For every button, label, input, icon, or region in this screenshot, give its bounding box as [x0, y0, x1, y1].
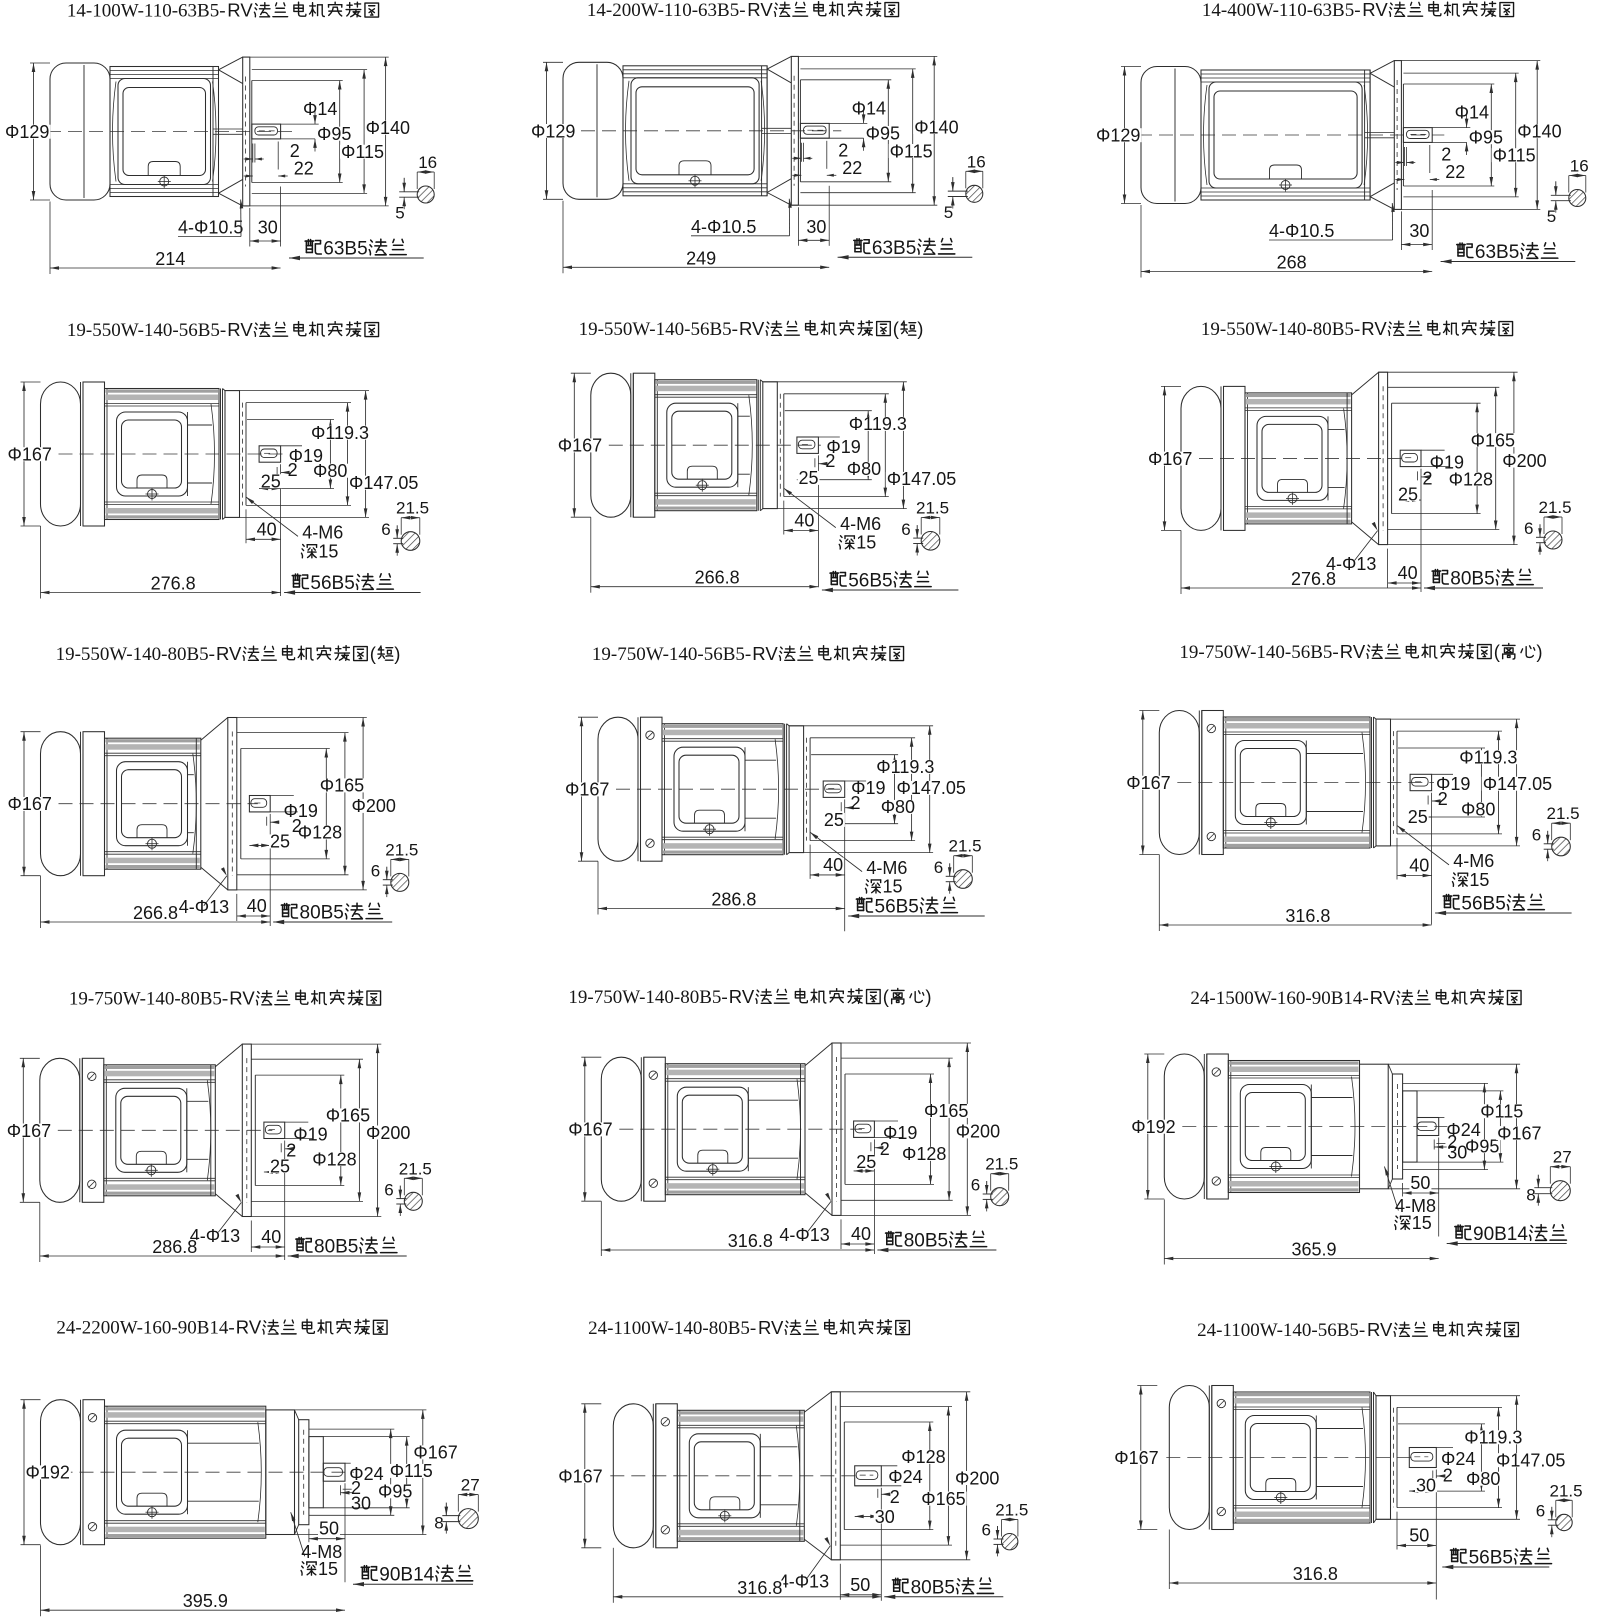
svg-text:40: 40 [257, 519, 277, 539]
svg-text:Φ200: Φ200 [352, 796, 396, 816]
svg-text:Φ128: Φ128 [902, 1144, 946, 1164]
svg-text:15: 15 [883, 877, 903, 897]
svg-text:Φ14: Φ14 [852, 98, 886, 118]
svg-text:RV: RV [1361, 318, 1387, 339]
svg-text:4-M6: 4-M6 [866, 858, 907, 878]
svg-text:Φ95: Φ95 [1465, 1136, 1499, 1156]
svg-text:40: 40 [1398, 563, 1418, 583]
svg-text:286.8: 286.8 [711, 890, 756, 910]
svg-text:RV: RV [758, 1317, 784, 1338]
svg-text:40: 40 [247, 896, 267, 916]
svg-text:56B5: 56B5 [1469, 1548, 1513, 1569]
svg-text:24-2200W-160-90B14-: 24-2200W-160-90B14- [56, 1318, 234, 1339]
svg-text:63B5: 63B5 [323, 239, 367, 260]
svg-text:RV: RV [1367, 1319, 1393, 1340]
svg-text:63B5: 63B5 [1475, 242, 1519, 263]
svg-text:Φ80: Φ80 [847, 459, 881, 479]
svg-text:6: 6 [934, 858, 943, 877]
svg-text:24-1100W-140-80B5-: 24-1100W-140-80B5- [588, 1318, 756, 1339]
svg-text:25: 25 [799, 468, 819, 488]
svg-text:19-750W-140-56B5-: 19-750W-140-56B5- [592, 644, 751, 665]
svg-text:2: 2 [851, 793, 861, 813]
svg-text:2: 2 [1443, 1466, 1453, 1486]
svg-text:25: 25 [1408, 807, 1428, 827]
svg-text:4-Φ13: 4-Φ13 [779, 1225, 829, 1245]
svg-text:4-Φ10.5: 4-Φ10.5 [1269, 221, 1334, 241]
svg-text:30: 30 [875, 1507, 895, 1527]
svg-text:56B5: 56B5 [875, 897, 919, 918]
svg-text:6: 6 [1524, 519, 1533, 538]
svg-text:Φ80: Φ80 [1461, 800, 1495, 820]
svg-text:21.5: 21.5 [995, 1501, 1028, 1520]
svg-text:Φ129: Φ129 [5, 122, 49, 142]
svg-text:30: 30 [258, 218, 278, 238]
svg-text:16: 16 [1570, 157, 1589, 176]
svg-text:RV: RV [739, 318, 765, 339]
svg-text:266.8: 266.8 [133, 903, 178, 923]
svg-text:4-Φ10.5: 4-Φ10.5 [178, 218, 243, 238]
svg-text:15: 15 [1412, 1213, 1432, 1233]
svg-text:RV: RV [752, 643, 778, 664]
svg-text:22: 22 [1445, 162, 1465, 182]
svg-text:90B14: 90B14 [379, 1565, 434, 1586]
svg-text:2: 2 [890, 1487, 900, 1507]
svg-text:Φ19: Φ19 [293, 1124, 327, 1144]
svg-text:56B5: 56B5 [310, 573, 354, 594]
svg-text:40: 40 [794, 511, 814, 531]
svg-text:21.5: 21.5 [1539, 498, 1572, 517]
svg-text:21.5: 21.5 [399, 1159, 432, 1178]
svg-text:15: 15 [1469, 870, 1489, 890]
svg-text:19-550W-140-80B5-: 19-550W-140-80B5- [1201, 319, 1360, 340]
svg-text:Φ192: Φ192 [26, 1463, 70, 1483]
svg-text:Φ24: Φ24 [888, 1467, 922, 1487]
svg-text:50: 50 [1409, 1526, 1429, 1546]
svg-text:6: 6 [1536, 1502, 1545, 1521]
svg-text:Φ128: Φ128 [312, 1149, 356, 1169]
svg-text:276.8: 276.8 [151, 574, 196, 594]
svg-text:2: 2 [288, 460, 298, 480]
svg-text:316.8: 316.8 [1293, 1564, 1338, 1584]
svg-text:Φ167: Φ167 [1126, 773, 1170, 793]
svg-text:14-200W-110-63B5-: 14-200W-110-63B5- [587, 0, 746, 21]
svg-text:50: 50 [319, 1519, 339, 1539]
svg-text:4-M6: 4-M6 [1453, 851, 1494, 871]
svg-text:Φ115: Φ115 [1480, 1102, 1523, 1122]
svg-text:5: 5 [395, 204, 404, 223]
svg-text:Φ14: Φ14 [303, 99, 337, 119]
svg-text:Φ80: Φ80 [313, 461, 347, 481]
svg-text:25: 25 [270, 832, 290, 852]
svg-text:80B5: 80B5 [1450, 569, 1494, 590]
svg-text:Φ167: Φ167 [8, 445, 52, 465]
svg-text:268: 268 [1277, 253, 1307, 273]
svg-text:15: 15 [856, 533, 876, 553]
svg-text:24-1500W-160-90B14-: 24-1500W-160-90B14- [1190, 988, 1368, 1009]
svg-text:Φ147.05: Φ147.05 [897, 778, 966, 798]
svg-text:8: 8 [1526, 1186, 1535, 1205]
svg-text:2: 2 [292, 816, 302, 836]
svg-text:Φ167: Φ167 [1148, 449, 1192, 469]
svg-text:Φ95: Φ95 [317, 124, 351, 144]
svg-text:21.5: 21.5 [1550, 1481, 1583, 1500]
svg-text:63B5: 63B5 [872, 238, 916, 259]
svg-text:6: 6 [371, 861, 380, 880]
svg-text:316.8: 316.8 [737, 1578, 782, 1598]
svg-text:RV: RV [229, 988, 255, 1009]
svg-text:15: 15 [318, 1559, 338, 1579]
svg-text:Φ129: Φ129 [531, 121, 575, 141]
svg-text:316.8: 316.8 [1285, 906, 1330, 926]
svg-text:22: 22 [842, 158, 862, 178]
svg-text:RV: RV [1362, 0, 1388, 20]
svg-text:27: 27 [461, 1476, 480, 1495]
svg-text:4-Φ13: 4-Φ13 [179, 897, 229, 917]
svg-text:Φ200: Φ200 [366, 1123, 410, 1143]
svg-text:21.5: 21.5 [385, 840, 418, 859]
svg-text:25: 25 [261, 472, 281, 492]
svg-text:16: 16 [967, 152, 986, 171]
svg-text:Φ119.3: Φ119.3 [1459, 748, 1517, 768]
svg-text:30: 30 [806, 217, 826, 237]
svg-text:(: ( [893, 318, 900, 339]
svg-text:19-750W-140-80B5-: 19-750W-140-80B5- [69, 989, 228, 1010]
svg-text:Φ119.3: Φ119.3 [311, 423, 369, 443]
svg-text:Φ167: Φ167 [565, 780, 609, 800]
svg-text:14-400W-110-63B5-: 14-400W-110-63B5- [1202, 0, 1361, 21]
svg-text:Φ167: Φ167 [8, 794, 52, 814]
svg-text:Φ95: Φ95 [866, 123, 900, 143]
svg-text:Φ167: Φ167 [1114, 1448, 1158, 1468]
svg-text:2: 2 [825, 451, 835, 471]
svg-text:286.8: 286.8 [152, 1237, 197, 1257]
svg-text:8: 8 [434, 1514, 443, 1533]
svg-text:Φ167: Φ167 [558, 1466, 602, 1486]
svg-text:Φ115: Φ115 [890, 141, 933, 161]
svg-text:4-Φ13: 4-Φ13 [779, 1571, 829, 1591]
svg-text:25: 25 [824, 810, 844, 830]
svg-text:Φ167: Φ167 [7, 1121, 51, 1141]
svg-text:Φ147.05: Φ147.05 [1483, 774, 1552, 794]
svg-text:Φ119.3: Φ119.3 [876, 757, 934, 777]
svg-text:21.5: 21.5 [949, 837, 982, 856]
svg-text:21.5: 21.5 [396, 499, 429, 518]
svg-text:): ) [394, 643, 400, 664]
svg-text:316.8: 316.8 [728, 1231, 773, 1251]
svg-text:80B5: 80B5 [314, 1237, 358, 1258]
svg-text:6: 6 [971, 1176, 980, 1195]
svg-text:15: 15 [318, 542, 338, 562]
svg-text:6: 6 [982, 1521, 991, 1540]
svg-text:RV: RV [1370, 987, 1396, 1008]
svg-text:80B5: 80B5 [911, 1577, 955, 1598]
svg-text:276.8: 276.8 [1291, 569, 1336, 589]
svg-text:25: 25 [856, 1152, 876, 1172]
svg-text:): ) [1536, 641, 1542, 662]
svg-text:RV: RV [236, 1317, 262, 1338]
svg-text:Φ80: Φ80 [881, 797, 915, 817]
svg-text:Φ119.3: Φ119.3 [1464, 1428, 1522, 1448]
svg-text:25: 25 [270, 1156, 290, 1176]
svg-text:4-M6: 4-M6 [840, 514, 881, 534]
svg-text:Φ147.05: Φ147.05 [1496, 1451, 1565, 1471]
svg-text:80B5: 80B5 [904, 1231, 948, 1252]
svg-text:Φ200: Φ200 [956, 1122, 1000, 1142]
svg-text:21.5: 21.5 [916, 499, 949, 518]
svg-text:2: 2 [1438, 789, 1448, 809]
svg-text:395.9: 395.9 [183, 1591, 228, 1611]
svg-text:Φ147.05: Φ147.05 [887, 469, 956, 489]
svg-text:Φ140: Φ140 [1517, 122, 1561, 142]
svg-text:19-550W-140-80B5-: 19-550W-140-80B5- [56, 644, 215, 665]
svg-text:Φ140: Φ140 [914, 117, 958, 137]
svg-text:24-1100W-140-56B5-: 24-1100W-140-56B5- [1197, 1320, 1365, 1341]
svg-text:Φ128: Φ128 [1449, 469, 1493, 489]
svg-text:Φ167: Φ167 [558, 436, 602, 456]
svg-text:90B14: 90B14 [1473, 1224, 1528, 1245]
svg-text:50: 50 [1410, 1173, 1430, 1193]
svg-text:16: 16 [418, 153, 437, 172]
svg-text:Φ140: Φ140 [366, 118, 410, 138]
svg-text:50: 50 [850, 1575, 870, 1595]
svg-text:Φ119.3: Φ119.3 [849, 414, 907, 434]
svg-text:): ) [925, 986, 931, 1007]
svg-text:Φ192: Φ192 [1131, 1117, 1175, 1137]
svg-text:5: 5 [944, 203, 953, 222]
svg-text:5: 5 [1547, 207, 1556, 226]
svg-text:56B5: 56B5 [848, 571, 892, 592]
svg-text:19-550W-140-56B5-: 19-550W-140-56B5- [67, 320, 226, 341]
svg-text:Φ200: Φ200 [955, 1468, 999, 1488]
svg-text:Φ147.05: Φ147.05 [349, 473, 418, 493]
svg-text:249: 249 [686, 248, 716, 268]
svg-text:214: 214 [155, 249, 185, 269]
svg-text:21.5: 21.5 [1547, 804, 1580, 823]
svg-text:Φ129: Φ129 [1096, 126, 1140, 146]
svg-text:6: 6 [1532, 826, 1541, 845]
svg-text:19-750W-140-80B5-: 19-750W-140-80B5- [568, 987, 727, 1008]
svg-text:56B5: 56B5 [1461, 894, 1505, 915]
svg-text:22: 22 [294, 159, 314, 179]
svg-text:30: 30 [1447, 1143, 1467, 1163]
svg-text:6: 6 [901, 520, 910, 539]
svg-text:RV: RV [1340, 641, 1366, 662]
svg-text:365.9: 365.9 [1292, 1240, 1337, 1260]
svg-text:19-750W-140-56B5-: 19-750W-140-56B5- [1179, 642, 1338, 663]
svg-text:): ) [917, 318, 923, 339]
svg-text:RV: RV [729, 986, 755, 1007]
svg-text:30: 30 [351, 1494, 371, 1514]
svg-text:Φ200: Φ200 [1502, 451, 1546, 471]
svg-text:19-550W-140-56B5-: 19-550W-140-56B5- [579, 319, 738, 340]
svg-text:Φ165: Φ165 [1471, 430, 1515, 450]
svg-text:Φ80: Φ80 [1466, 1469, 1500, 1489]
svg-text:40: 40 [823, 855, 843, 875]
svg-text:27: 27 [1553, 1148, 1572, 1167]
svg-text:RV: RV [216, 643, 242, 664]
svg-text:Φ14: Φ14 [1455, 103, 1489, 123]
svg-text:Φ167: Φ167 [568, 1120, 612, 1140]
svg-text:(: ( [370, 643, 377, 664]
svg-text:Φ115: Φ115 [1493, 146, 1536, 166]
svg-text:6: 6 [381, 520, 390, 539]
svg-text:Φ165: Φ165 [924, 1101, 968, 1121]
svg-text:RV: RV [747, 0, 773, 20]
svg-text:25: 25 [1398, 484, 1418, 504]
svg-text:Φ115: Φ115 [341, 142, 384, 162]
svg-text:4-M6: 4-M6 [302, 523, 343, 543]
svg-text:4-Φ10.5: 4-Φ10.5 [691, 217, 756, 237]
svg-text:Φ167: Φ167 [413, 1443, 457, 1463]
svg-text:Φ128: Φ128 [298, 823, 342, 843]
svg-text:6: 6 [384, 1180, 393, 1199]
svg-text:(: ( [1494, 641, 1501, 662]
svg-text:Φ165: Φ165 [921, 1489, 965, 1509]
svg-text:40: 40 [261, 1227, 281, 1247]
svg-text:266.8: 266.8 [695, 568, 740, 588]
svg-text:Φ165: Φ165 [326, 1106, 370, 1126]
svg-text:14-100W-110-63B5-: 14-100W-110-63B5- [67, 1, 226, 22]
svg-text:Φ95: Φ95 [378, 1482, 412, 1502]
svg-text:21.5: 21.5 [985, 1155, 1018, 1174]
svg-text:30: 30 [1416, 1476, 1436, 1496]
svg-text:2: 2 [880, 1139, 890, 1159]
svg-text:40: 40 [851, 1224, 871, 1244]
svg-text:Φ165: Φ165 [320, 776, 364, 796]
svg-text:Φ128: Φ128 [901, 1447, 945, 1467]
svg-text:Φ167: Φ167 [1497, 1123, 1541, 1143]
svg-text:(: ( [883, 986, 890, 1007]
svg-text:RV: RV [227, 0, 253, 21]
svg-text:2: 2 [1423, 468, 1433, 488]
svg-text:80B5: 80B5 [300, 903, 344, 924]
svg-text:RV: RV [227, 319, 253, 340]
svg-text:Φ115: Φ115 [390, 1461, 433, 1481]
svg-text:30: 30 [1409, 221, 1429, 241]
svg-text:40: 40 [1409, 856, 1429, 876]
svg-text:Φ95: Φ95 [1469, 128, 1503, 148]
